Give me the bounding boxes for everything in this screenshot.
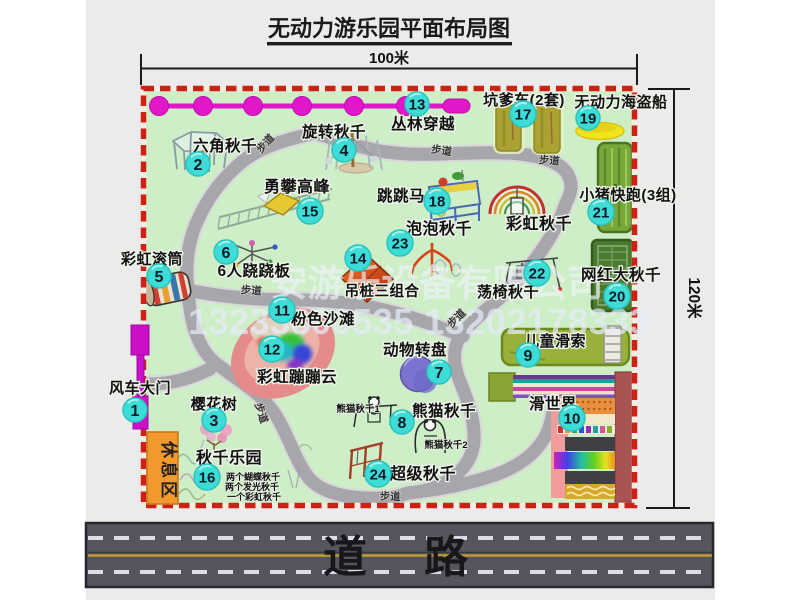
- svg-text:步道: 步道: [240, 283, 262, 297]
- svg-text:23: 23: [392, 235, 409, 252]
- svg-text:24: 24: [370, 466, 387, 483]
- svg-text:休息区: 休息区: [159, 440, 179, 501]
- svg-text:7: 7: [435, 365, 444, 382]
- svg-text:熊猫秋千: 熊猫秋千: [412, 401, 476, 420]
- svg-text:1: 1: [131, 403, 140, 420]
- svg-text:18: 18: [429, 193, 446, 210]
- svg-text:21: 21: [593, 204, 610, 221]
- svg-text:9: 9: [524, 348, 533, 365]
- svg-text:网红大秋千: 网红大秋千: [581, 265, 661, 284]
- svg-text:步道: 步道: [379, 490, 401, 504]
- svg-text:100米: 100米: [369, 49, 410, 67]
- svg-text:6: 6: [222, 245, 231, 262]
- svg-text:两个蝴蝶秋千: 两个蝴蝶秋千: [226, 471, 280, 482]
- svg-text:跳跳马: 跳跳马: [377, 186, 425, 205]
- svg-text:无动力游乐园平面布局图: 无动力游乐园平面布局图: [268, 16, 510, 41]
- svg-text:步道: 步道: [538, 153, 560, 167]
- svg-text:16: 16: [199, 469, 216, 486]
- svg-text:4: 4: [340, 143, 349, 160]
- svg-text:15: 15: [302, 203, 319, 220]
- svg-text:2: 2: [194, 157, 203, 174]
- svg-text:两个发光秋千: 两个发光秋千: [225, 481, 279, 492]
- svg-text:安游乐设备有限公司: 安游乐设备有限公司: [271, 263, 604, 304]
- svg-text:勇攀高峰: 勇攀高峰: [264, 177, 331, 196]
- svg-text:彩虹秋千: 彩虹秋千: [505, 214, 572, 233]
- svg-text:3: 3: [210, 413, 219, 430]
- svg-text:泡泡秋千: 泡泡秋千: [406, 219, 472, 238]
- svg-text:13: 13: [409, 96, 426, 113]
- svg-text:120米: 120米: [685, 277, 704, 319]
- svg-text:超级秋千: 超级秋千: [389, 464, 456, 483]
- svg-text:5: 5: [155, 269, 164, 286]
- svg-text:熊猫秋千2: 熊猫秋千2: [424, 439, 467, 451]
- svg-text:吊桩三组合: 吊桩三组合: [345, 282, 420, 300]
- svg-text:丛林穿越: 丛林穿越: [391, 114, 455, 133]
- svg-text:荡椅秋千: 荡椅秋千: [477, 283, 539, 301]
- svg-text:19: 19: [580, 110, 597, 127]
- svg-text:旋转秋千: 旋转秋千: [301, 122, 366, 141]
- svg-text:14: 14: [350, 250, 367, 267]
- svg-text:风车大门: 风车大门: [109, 379, 171, 397]
- svg-text:彩虹蹦蹦云: 彩虹蹦蹦云: [256, 367, 337, 386]
- svg-text:路: 路: [424, 533, 469, 582]
- svg-text:粉色沙滩: 粉色沙滩: [291, 309, 355, 328]
- svg-text:彩虹滚筒: 彩虹滚筒: [120, 250, 183, 268]
- svg-text:20: 20: [609, 288, 626, 305]
- svg-text:动物转盘: 动物转盘: [383, 340, 447, 359]
- svg-text:熊猫秋千1: 熊猫秋千1: [336, 403, 380, 415]
- svg-text:12: 12: [264, 341, 281, 358]
- svg-text:22: 22: [529, 265, 546, 282]
- svg-text:道: 道: [323, 533, 367, 582]
- svg-text:10: 10: [564, 410, 581, 427]
- svg-text:一个彩虹秋千: 一个彩虹秋千: [227, 491, 281, 502]
- svg-text:8: 8: [398, 415, 407, 432]
- svg-text:11: 11: [274, 302, 290, 319]
- svg-text:17: 17: [515, 106, 532, 123]
